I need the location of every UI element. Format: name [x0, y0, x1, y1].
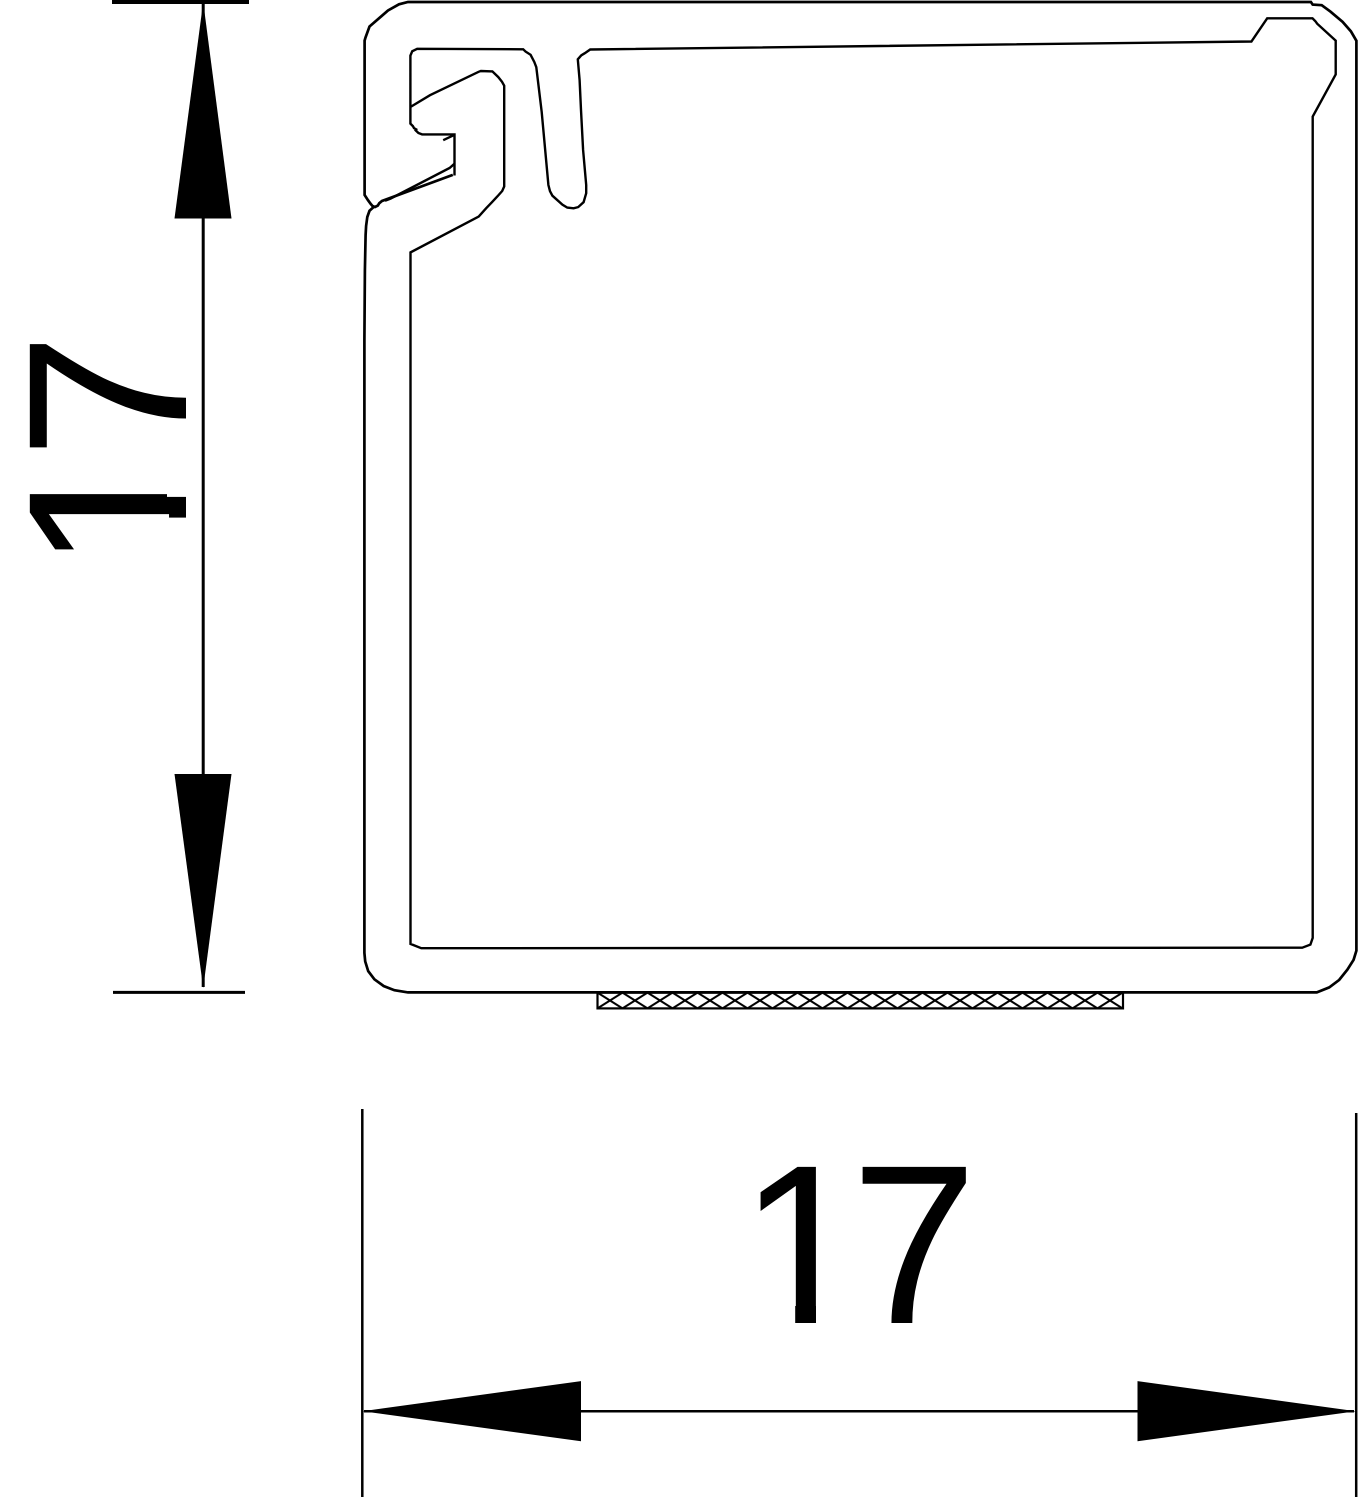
svg-text:17: 17 — [739, 1119, 966, 1372]
svg-text:17: 17 — [0, 344, 235, 571]
